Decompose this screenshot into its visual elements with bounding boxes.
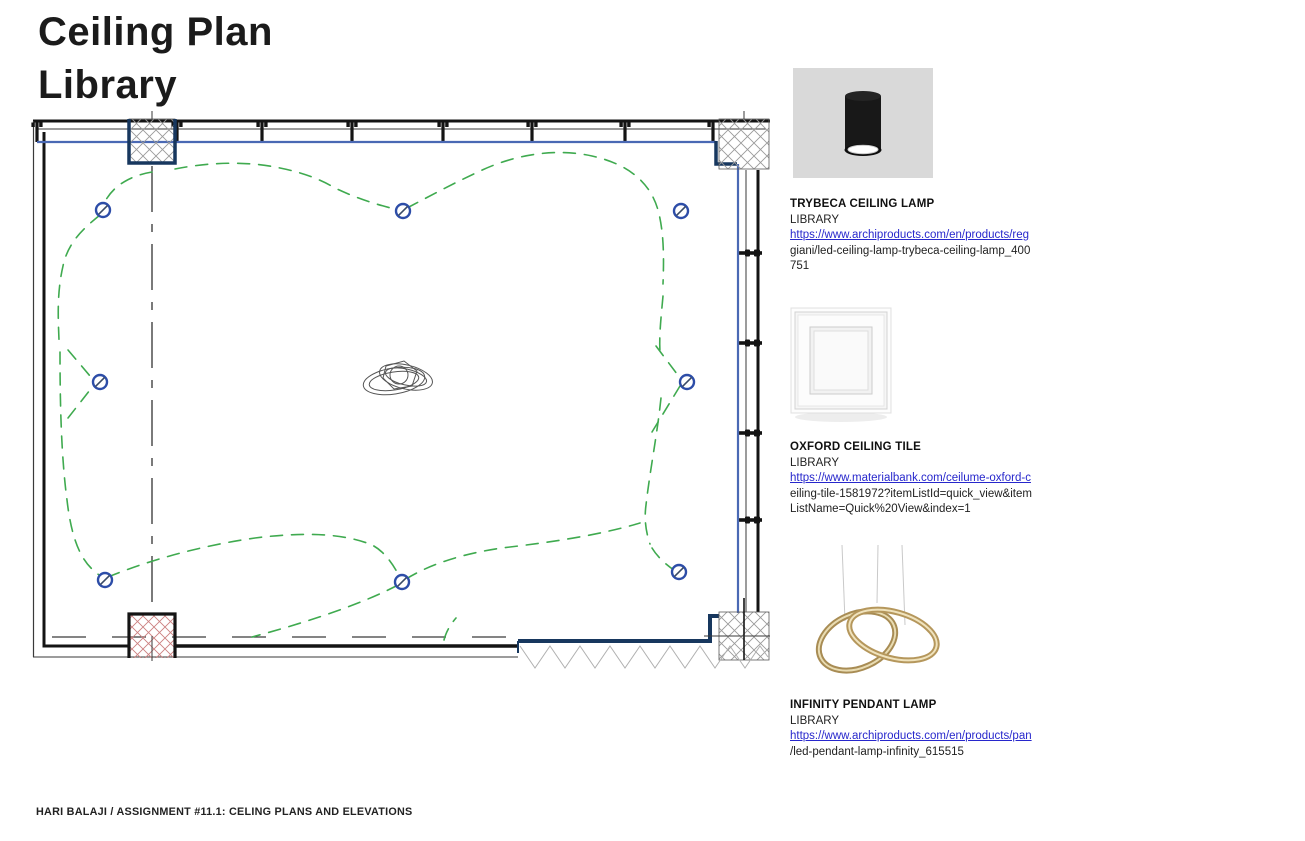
product-url-wrap: /led-pendant-lamp-infinity_615515: [790, 745, 1070, 761]
ceiling-plan-drawing: [0, 0, 1305, 841]
column-top-left: [129, 111, 175, 163]
product-name: INFINITY PENDANT LAMP: [790, 698, 1070, 714]
product-link[interactable]: https://www.archiproducts.com/en/product…: [790, 729, 1070, 745]
downlight-symbol: [674, 204, 688, 218]
downlight-layer: [93, 203, 694, 589]
wall-blue-lines: [37, 141, 738, 653]
product-url-wrap: eiling-tile-1581972?itemListId=quick_vie…: [790, 487, 1070, 503]
product-name: OXFORD CEILING TILE: [790, 440, 1070, 456]
downlight-symbol: [672, 565, 686, 579]
column-top-right: [719, 111, 769, 169]
downlight-symbol: [395, 575, 409, 589]
black-cylinder-lamp-photo: [793, 68, 933, 178]
product-card-oxford: OXFORD CEILING TILE LIBRARY https://www.…: [790, 440, 1070, 518]
product-card-trybeca: TRYBECA CEILING LAMP LIBRARY https://www…: [790, 197, 1070, 275]
downlight-symbol: [396, 204, 410, 218]
gold-pendant-photo: [795, 543, 951, 683]
product-url-wrap: 751: [790, 259, 1070, 275]
product-name: TRYBECA CEILING LAMP: [790, 197, 1070, 213]
downlight-symbol: [96, 203, 110, 217]
downlight-symbol: [93, 375, 107, 389]
footer-text: HARI BALAJI / ASSIGNMENT #11.1: CELING P…: [36, 806, 413, 818]
product-collection: LIBRARY: [790, 714, 1070, 730]
pendant-lamp-symbol: [361, 359, 435, 398]
product-url-wrap: giani/led-ceiling-lamp-trybeca-ceiling-l…: [790, 244, 1070, 260]
coffered-tile-photo: [788, 303, 894, 427]
product-link[interactable]: https://www.archiproducts.com/en/product…: [790, 228, 1070, 244]
product-image-infinity: [795, 543, 951, 688]
product-link[interactable]: https://www.materialbank.com/ceilume-oxf…: [790, 471, 1070, 487]
product-image-trybeca: [793, 68, 933, 183]
downlight-symbol: [680, 375, 694, 389]
product-url-wrap: ListName=Quick%20View&index=1: [790, 502, 1070, 518]
columns: [129, 111, 770, 661]
product-image-oxford: [788, 303, 894, 432]
product-collection: LIBRARY: [790, 213, 1070, 229]
product-card-infinity: INFINITY PENDANT LAMP LIBRARY https://ww…: [790, 698, 1070, 760]
downlight-symbol: [98, 573, 112, 587]
column-bottom-left: [129, 614, 175, 661]
product-collection: LIBRARY: [790, 456, 1070, 472]
